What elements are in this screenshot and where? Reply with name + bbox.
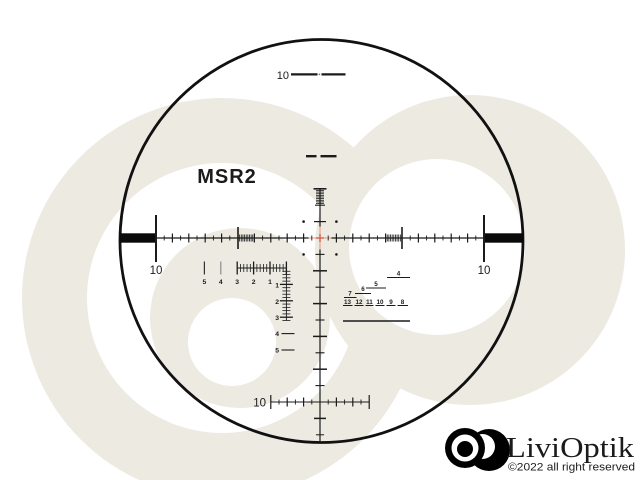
lens-dot-icon <box>457 441 473 457</box>
stadia-upper-label: 5 <box>374 281 378 288</box>
ranging-v-label: 5 <box>275 348 279 355</box>
brand-logo: LiviOptik ©2022 all right reserved <box>445 428 635 474</box>
ranging-h-label: 5 <box>203 279 207 286</box>
stadia-lower-label: 13 <box>344 299 352 306</box>
stadia-lower-label: 9 <box>389 299 393 306</box>
left-heavy-post <box>120 233 157 242</box>
ranging-h-label: 4 <box>219 279 223 286</box>
stadia-lower-label: 12 <box>355 299 363 306</box>
elevation-top-label: 10 <box>277 70 289 82</box>
ranging-v-label: 1 <box>275 282 279 289</box>
ranging-h-label: 2 <box>252 279 256 286</box>
reticle-diagram-page: MSR2 10 10 10 10 5 4 3 2 1 1 2 3 4 5 7 6… <box>0 0 640 480</box>
stadia-upper-label: 6 <box>361 286 365 293</box>
holdover-bottom-label: 10 <box>253 398 266 410</box>
stadia-upper-label: 4 <box>397 271 401 278</box>
brand-name: LiviOptik <box>506 433 634 464</box>
windage-right-label: 10 <box>478 265 491 277</box>
ranging-h-label: 1 <box>268 279 272 286</box>
stadia-upper-label: 7 <box>348 291 352 298</box>
ranging-v-label: 2 <box>275 299 279 306</box>
ranging-v-label: 4 <box>275 331 279 338</box>
stadia-lower-label: 10 <box>376 299 384 306</box>
reticle-diagram: MSR2 10 10 10 10 5 4 3 2 1 1 2 3 4 5 7 6… <box>0 0 640 480</box>
copyright-text: ©2022 all right reserved <box>508 462 635 474</box>
windage-left-label: 10 <box>150 265 163 277</box>
ranging-v-label: 3 <box>275 315 279 322</box>
brand-logo-icon <box>445 428 510 471</box>
stadia-lower-label: 8 <box>401 299 405 306</box>
ranging-h-label: 3 <box>235 279 239 286</box>
right-heavy-post <box>484 233 524 242</box>
reticle-model-label: MSR2 <box>197 166 257 188</box>
stadia-lower-label: 11 <box>366 299 373 306</box>
